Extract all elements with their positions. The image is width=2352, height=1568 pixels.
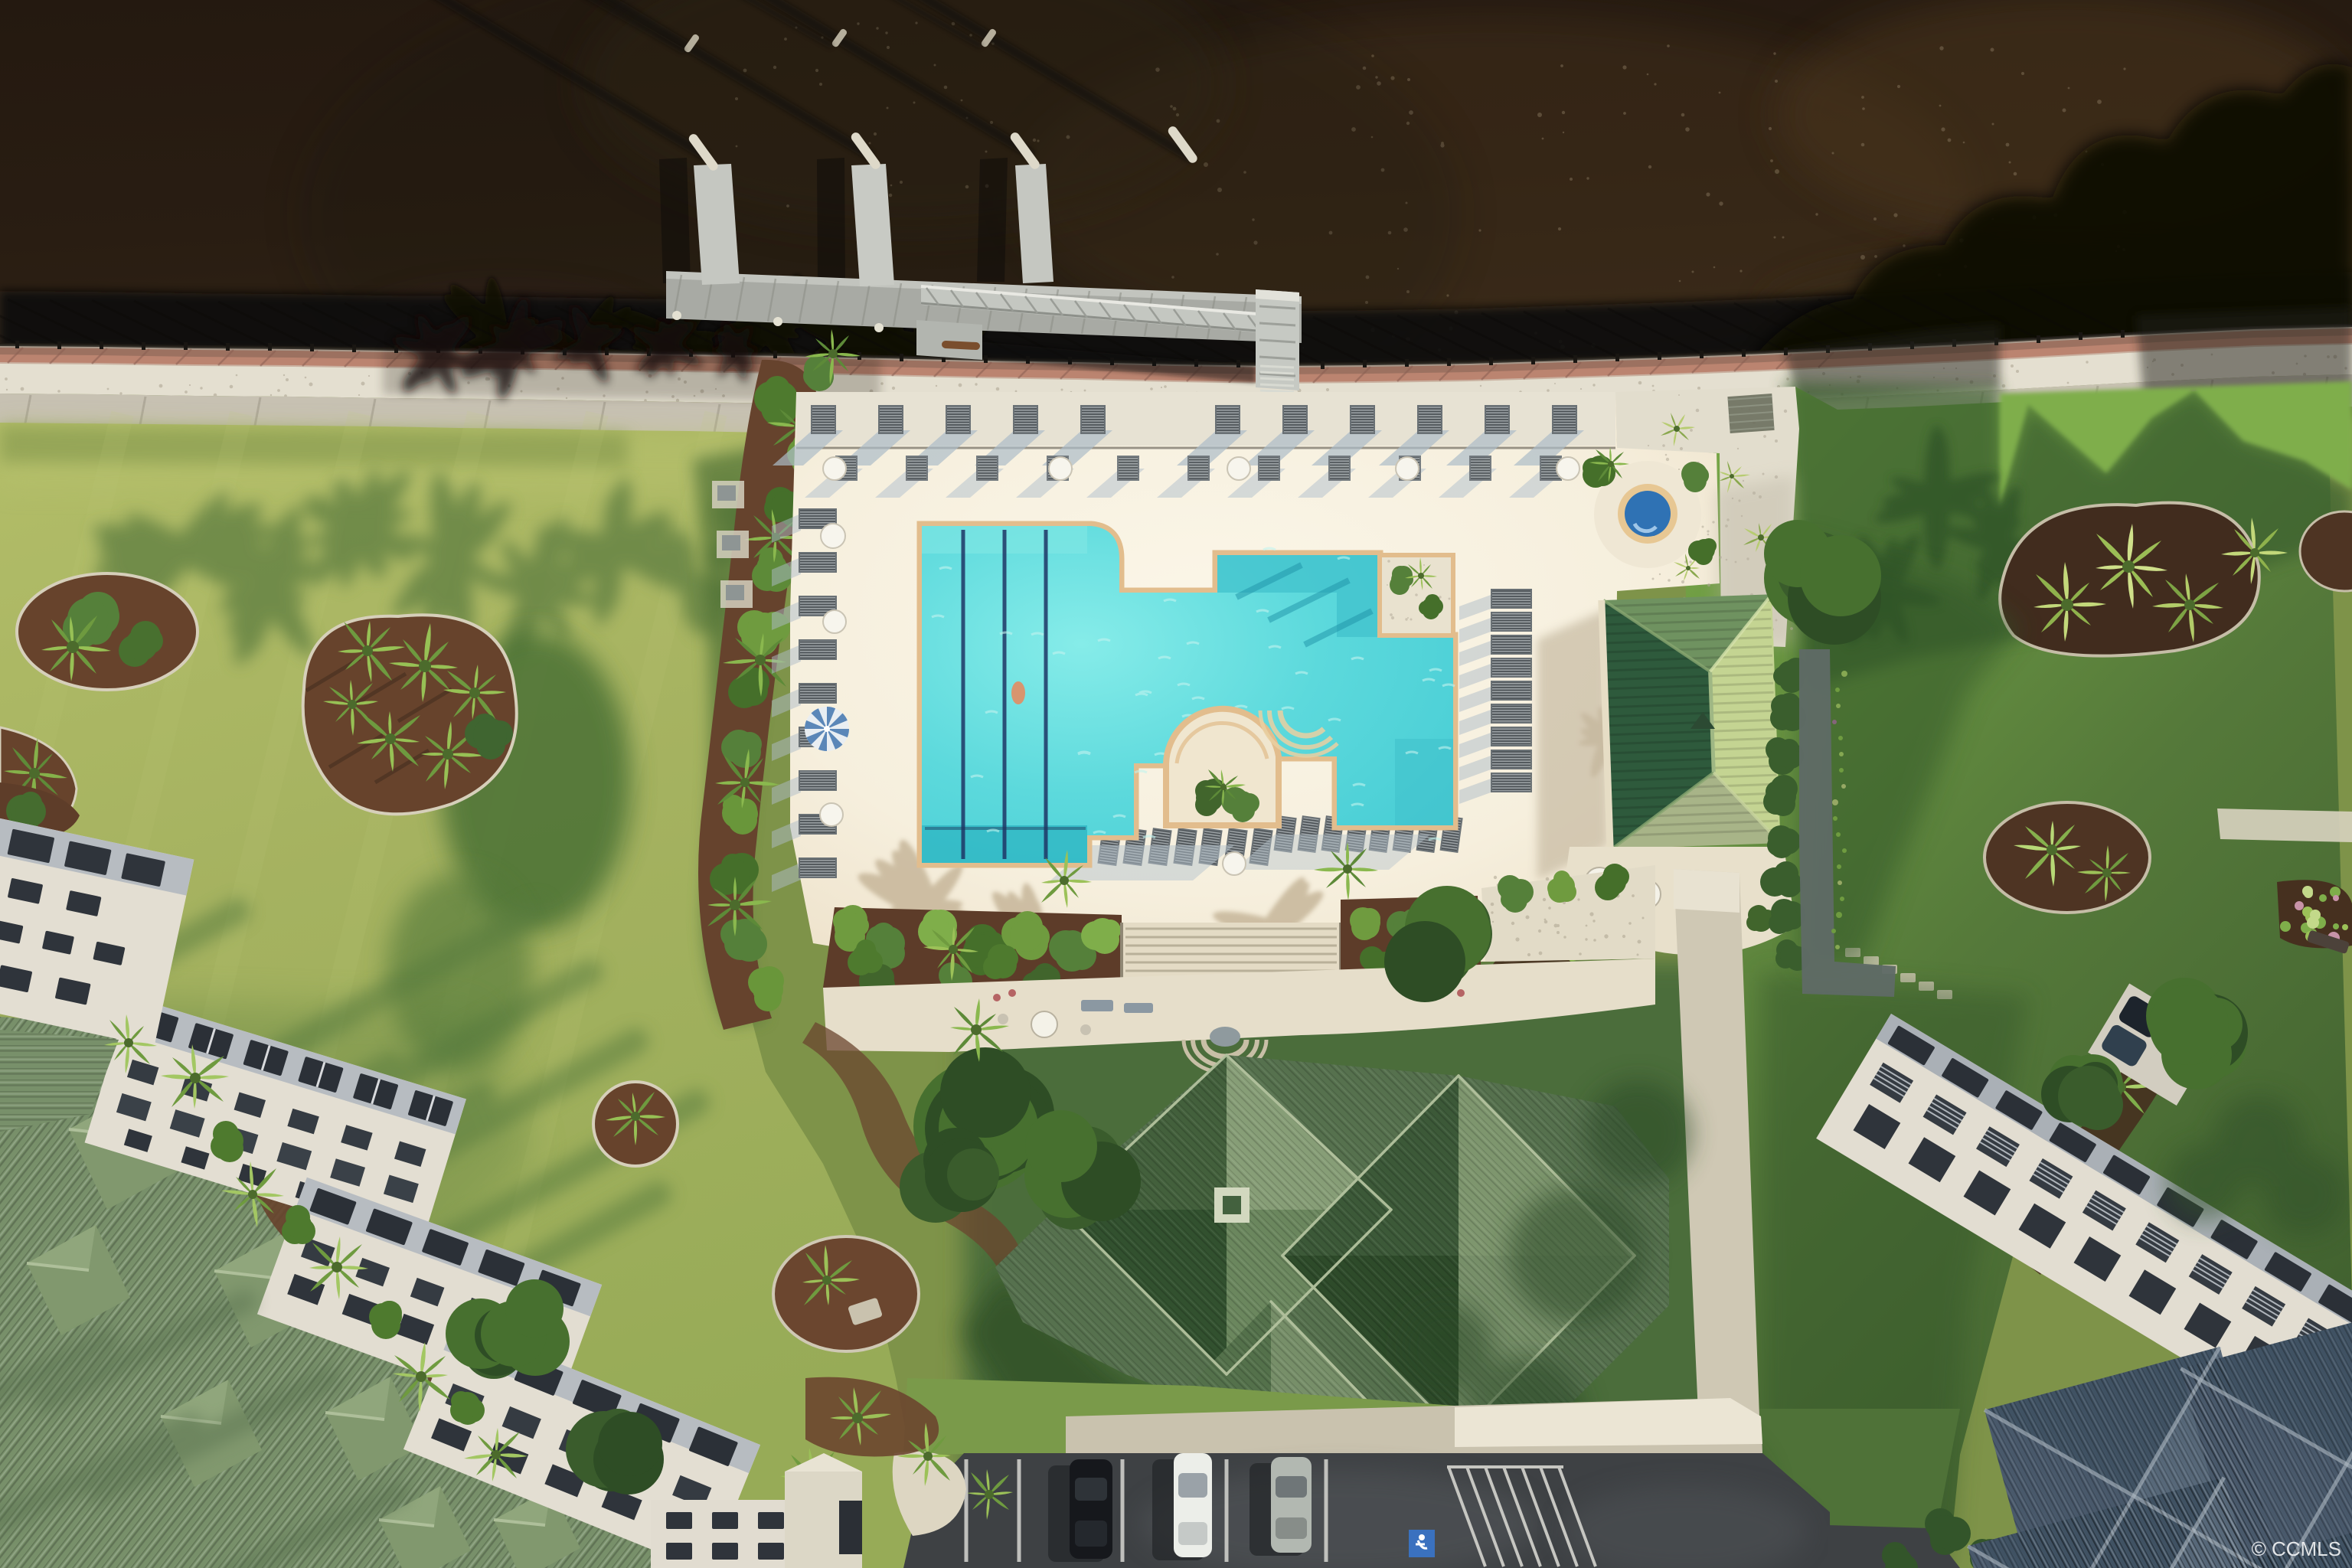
svg-text:© CCMLS: © CCMLS	[2252, 1537, 2341, 1560]
